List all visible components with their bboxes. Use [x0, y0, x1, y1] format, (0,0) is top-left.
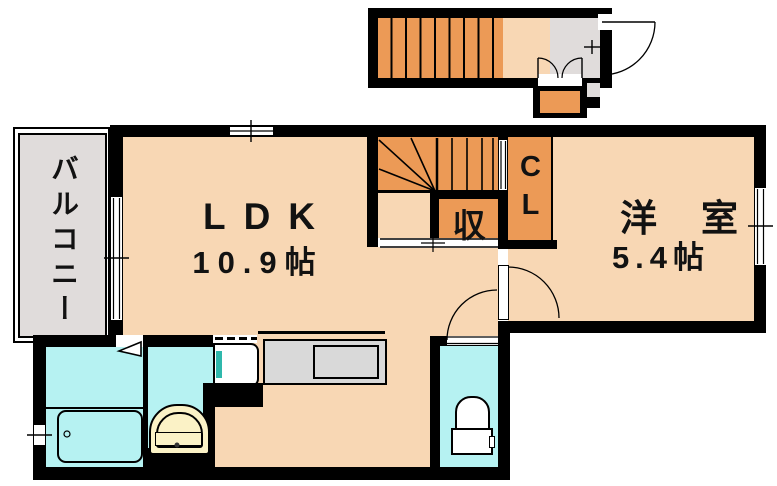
- western-room-area: 5.4帖: [560, 232, 756, 277]
- interior-winder-staircase: [378, 137, 498, 192]
- wall-storage-left: [430, 190, 439, 238]
- washroom-dash-2: [227, 337, 235, 340]
- wall-top: [110, 125, 766, 137]
- storage-label: 収: [440, 199, 498, 247]
- washbasin-drawer: [155, 432, 202, 446]
- closet-label: CL: [508, 140, 552, 238]
- wall-wet-left: [33, 335, 46, 480]
- window-ldk-top: [230, 127, 273, 135]
- wall-western-bottom: [498, 321, 766, 333]
- washroom-dash-4: [251, 337, 257, 340]
- opening-toilet-door: [447, 336, 498, 345]
- ldk-label: LDK: [150, 196, 368, 238]
- western-door-leaf: [498, 265, 509, 320]
- floor-plan: バルコニー LDK 10.9帖 収 CL 洋室 5.4帖: [0, 0, 777, 486]
- toilet-button: [489, 436, 495, 448]
- porch-closet: [540, 91, 580, 113]
- window-bathroom: [34, 425, 45, 445]
- porch-closet-opening: [538, 74, 582, 86]
- ldk-area: 10.9帖: [135, 237, 373, 282]
- wall-lower-right: [498, 321, 510, 480]
- washroom-dash-1: [215, 337, 223, 340]
- washing-machine-pan: [216, 351, 222, 378]
- window-balcony: [111, 197, 122, 320]
- porch-strip: [587, 83, 600, 97]
- exterior-staircase: [378, 18, 505, 78]
- opening-closet-side: [499, 140, 507, 190]
- wall-closet-bottom: [498, 240, 557, 249]
- exterior-stair-landing: [503, 18, 550, 78]
- porch-strip-cap: [587, 97, 600, 108]
- washroom-dash-3: [239, 337, 247, 340]
- toilet-tank: [451, 428, 493, 455]
- wall-storage-top: [430, 190, 498, 199]
- wall-stair-left: [367, 125, 378, 247]
- wall-toilet-left: [430, 345, 440, 480]
- kitchen-sink: [313, 345, 379, 379]
- hall-floor: [367, 247, 498, 340]
- entrance-door-opening: [598, 14, 614, 30]
- counter-back-line: [258, 331, 385, 334]
- opening-bathroom-door: [116, 335, 143, 347]
- bathtub: [57, 410, 143, 463]
- stair-landing: [378, 192, 435, 238]
- balcony-label: バルコニー: [40, 142, 86, 340]
- entrance-porch: [550, 18, 600, 78]
